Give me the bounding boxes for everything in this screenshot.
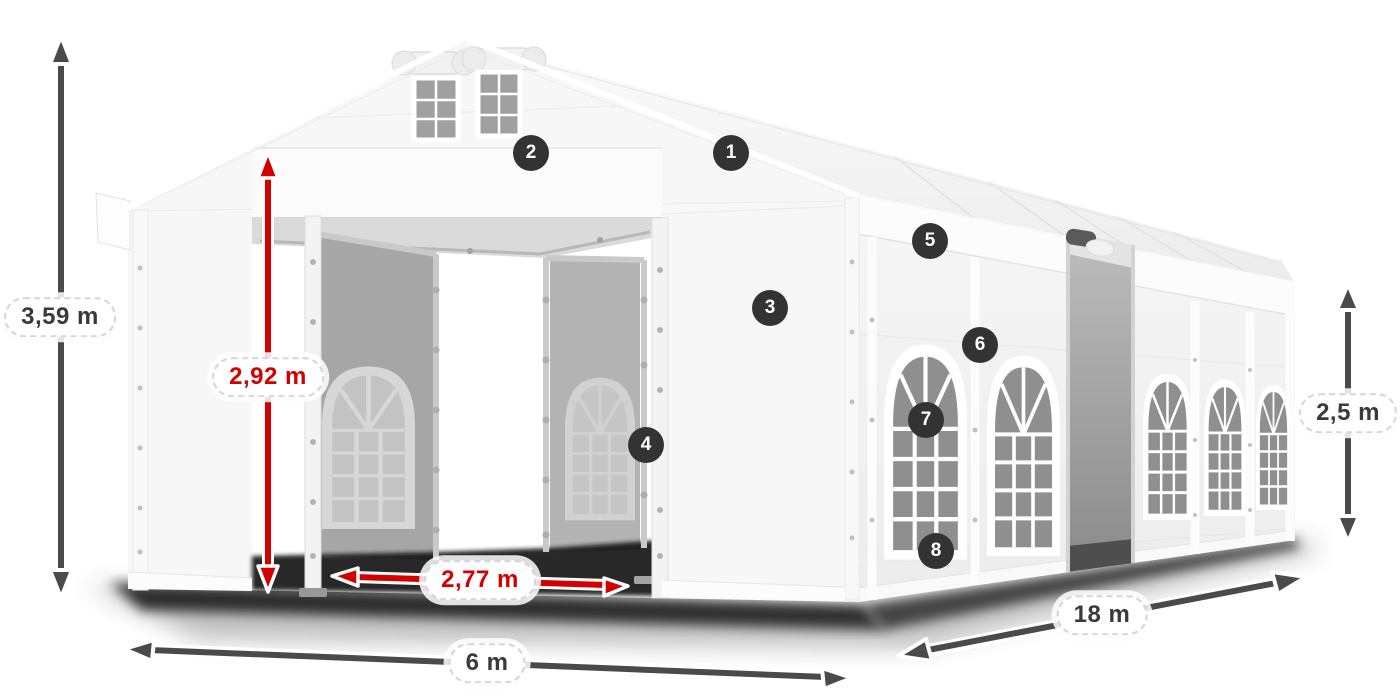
side-window-4 [1204, 379, 1246, 515]
side-window-1 [884, 345, 967, 560]
feature-marker-6: 6 [962, 327, 998, 363]
eave-overhang-flap [96, 193, 130, 250]
mesh-window-print-left [322, 367, 415, 530]
feature-marker-8: 8 [918, 533, 954, 569]
tent-illustration [0, 0, 1400, 700]
feature-marker-7: 7 [908, 402, 944, 438]
dimension-label-entrance-height: 2,92 m [212, 357, 324, 397]
entrance-header [252, 148, 662, 218]
feature-marker-1: 1 [713, 135, 749, 171]
feature-marker-2: 2 [513, 135, 549, 171]
dimension-label-width: 6 m [449, 643, 526, 683]
side-window-5 [1256, 385, 1291, 510]
dimension-label-side-height: 2,5 m [1299, 393, 1397, 433]
feature-marker-4: 4 [628, 427, 664, 463]
side-window-3 [1143, 374, 1192, 520]
mesh-window-print-right [565, 378, 635, 521]
side-door-opening [1065, 228, 1133, 572]
dimension-label-total-height: 3,59 m [4, 297, 116, 337]
feature-marker-3: 3 [752, 290, 788, 326]
tent-product-diagram: 3,59 m 2,92 m 2,77 m 6 m 18 m 2,5 m 1 2 … [0, 0, 1400, 700]
feature-marker-5: 5 [912, 223, 948, 259]
entrance-post-left [305, 216, 321, 594]
entrance-post-right [652, 218, 668, 598]
dimension-label-length: 18 m [1057, 595, 1148, 635]
dimension-label-entrance-width: 2,77 m [424, 560, 536, 600]
side-window-2 [987, 356, 1060, 556]
